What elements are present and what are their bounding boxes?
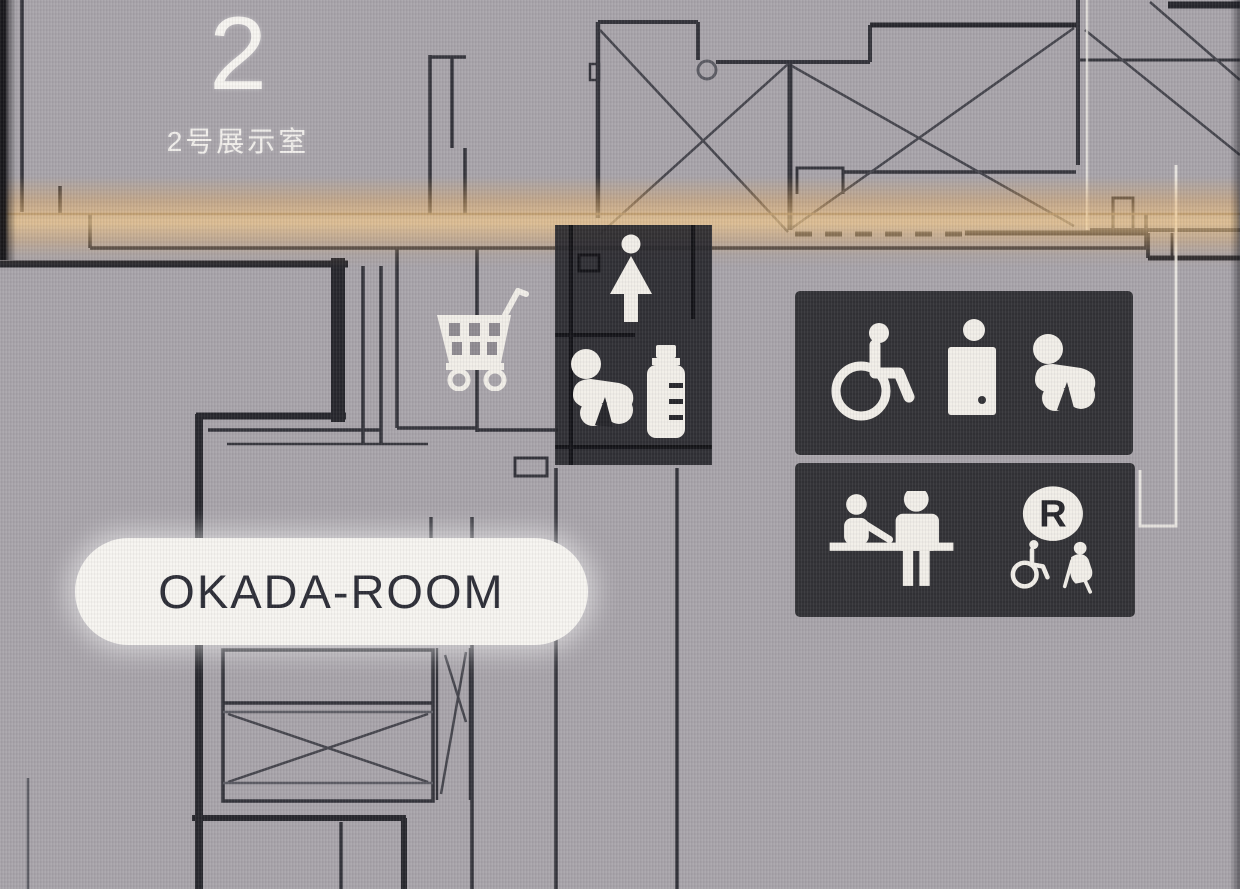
accessible-toilet-panel bbox=[795, 291, 1133, 455]
rental-letter: R bbox=[1039, 492, 1067, 535]
map-canvas[interactable]: 2 2号展示室 bbox=[0, 0, 1240, 889]
reception-desk-icon bbox=[829, 491, 954, 589]
restroom-facility-box bbox=[555, 225, 712, 465]
okada-room-pill: OKADA-ROOM bbox=[75, 538, 588, 645]
room2-name: 2号展示室 bbox=[148, 120, 328, 160]
person-with-cane-icon bbox=[1064, 542, 1092, 592]
room2-label: 2 2号展示室 bbox=[148, 0, 328, 160]
wheelchair-rental-icon: R bbox=[1002, 481, 1102, 599]
nursing-bottle-icon bbox=[643, 345, 689, 440]
screen-bezel-left bbox=[0, 0, 16, 260]
room2-number: 2 bbox=[148, 0, 328, 108]
ostomate-icon bbox=[938, 318, 1004, 428]
rental-mini-wheelchair-icon bbox=[1012, 540, 1047, 586]
screen-edge-right bbox=[1230, 0, 1240, 889]
shopping-cart-icon bbox=[413, 283, 531, 391]
okada-room-label: OKADA-ROOM bbox=[158, 564, 504, 619]
wheelchair-icon bbox=[823, 321, 918, 426]
baby-chair-icon bbox=[1023, 328, 1105, 418]
services-panel: R bbox=[795, 463, 1135, 617]
baby-changing-icon bbox=[561, 343, 643, 433]
women-restroom-icon bbox=[600, 234, 662, 326]
